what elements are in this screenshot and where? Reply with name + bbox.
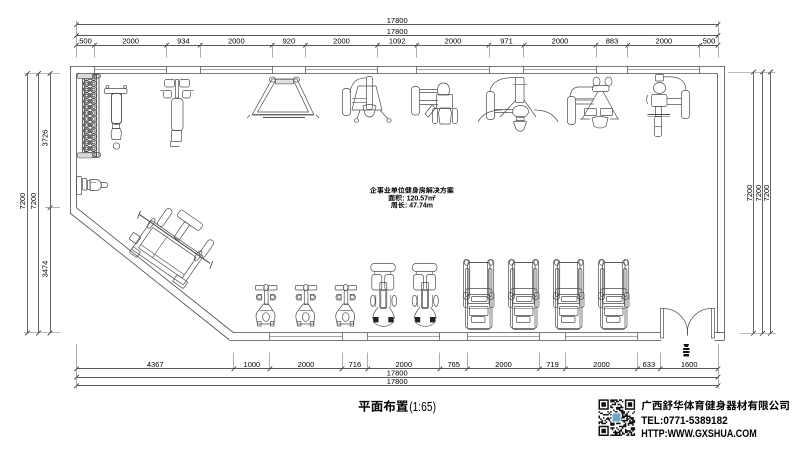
svg-text:3726: 3726: [40, 130, 49, 147]
svg-text:2000: 2000: [228, 36, 245, 45]
svg-text:716: 716: [349, 360, 362, 369]
svg-text:2000: 2000: [593, 360, 610, 369]
svg-text:7200: 7200: [29, 193, 38, 210]
svg-text:2000: 2000: [298, 360, 315, 369]
svg-text:2000: 2000: [495, 360, 512, 369]
svg-text:500: 500: [703, 36, 716, 45]
svg-text:719: 719: [546, 360, 559, 369]
svg-text:7200: 7200: [762, 185, 771, 202]
svg-text:1092: 1092: [389, 36, 406, 45]
svg-text:TEL:0771-5389182: TEL:0771-5389182: [641, 415, 728, 427]
svg-text:934: 934: [177, 36, 190, 45]
svg-text:971: 971: [500, 36, 513, 45]
svg-text:17800: 17800: [387, 27, 408, 36]
svg-text:2000: 2000: [395, 360, 412, 369]
svg-text:17800: 17800: [387, 16, 408, 25]
svg-text:883: 883: [606, 36, 619, 45]
svg-text:2000: 2000: [656, 36, 673, 45]
svg-text:4367: 4367: [147, 360, 164, 369]
svg-text:: 120.57m: : 120.57m: [402, 195, 434, 202]
svg-text:1000: 1000: [244, 360, 261, 369]
svg-text:2000: 2000: [122, 36, 139, 45]
svg-text:1600: 1600: [681, 360, 698, 369]
svg-text:17800: 17800: [387, 377, 408, 386]
svg-text:2000: 2000: [445, 36, 462, 45]
svg-text:2000: 2000: [333, 36, 350, 45]
svg-text:2000: 2000: [552, 36, 569, 45]
svg-text:(1:65): (1:65): [409, 400, 436, 414]
svg-text:: 47.74m: : 47.74m: [405, 203, 433, 210]
svg-text:633: 633: [643, 360, 656, 369]
svg-text:7200: 7200: [18, 193, 27, 210]
svg-text:HTTP:WWW.GXSHUA.COM: HTTP:WWW.GXSHUA.COM: [641, 428, 757, 440]
svg-text:765: 765: [447, 360, 460, 369]
svg-text:3474: 3474: [40, 261, 49, 278]
svg-text:920: 920: [283, 36, 296, 45]
svg-text:7200: 7200: [745, 185, 754, 202]
svg-text:500: 500: [79, 36, 92, 45]
